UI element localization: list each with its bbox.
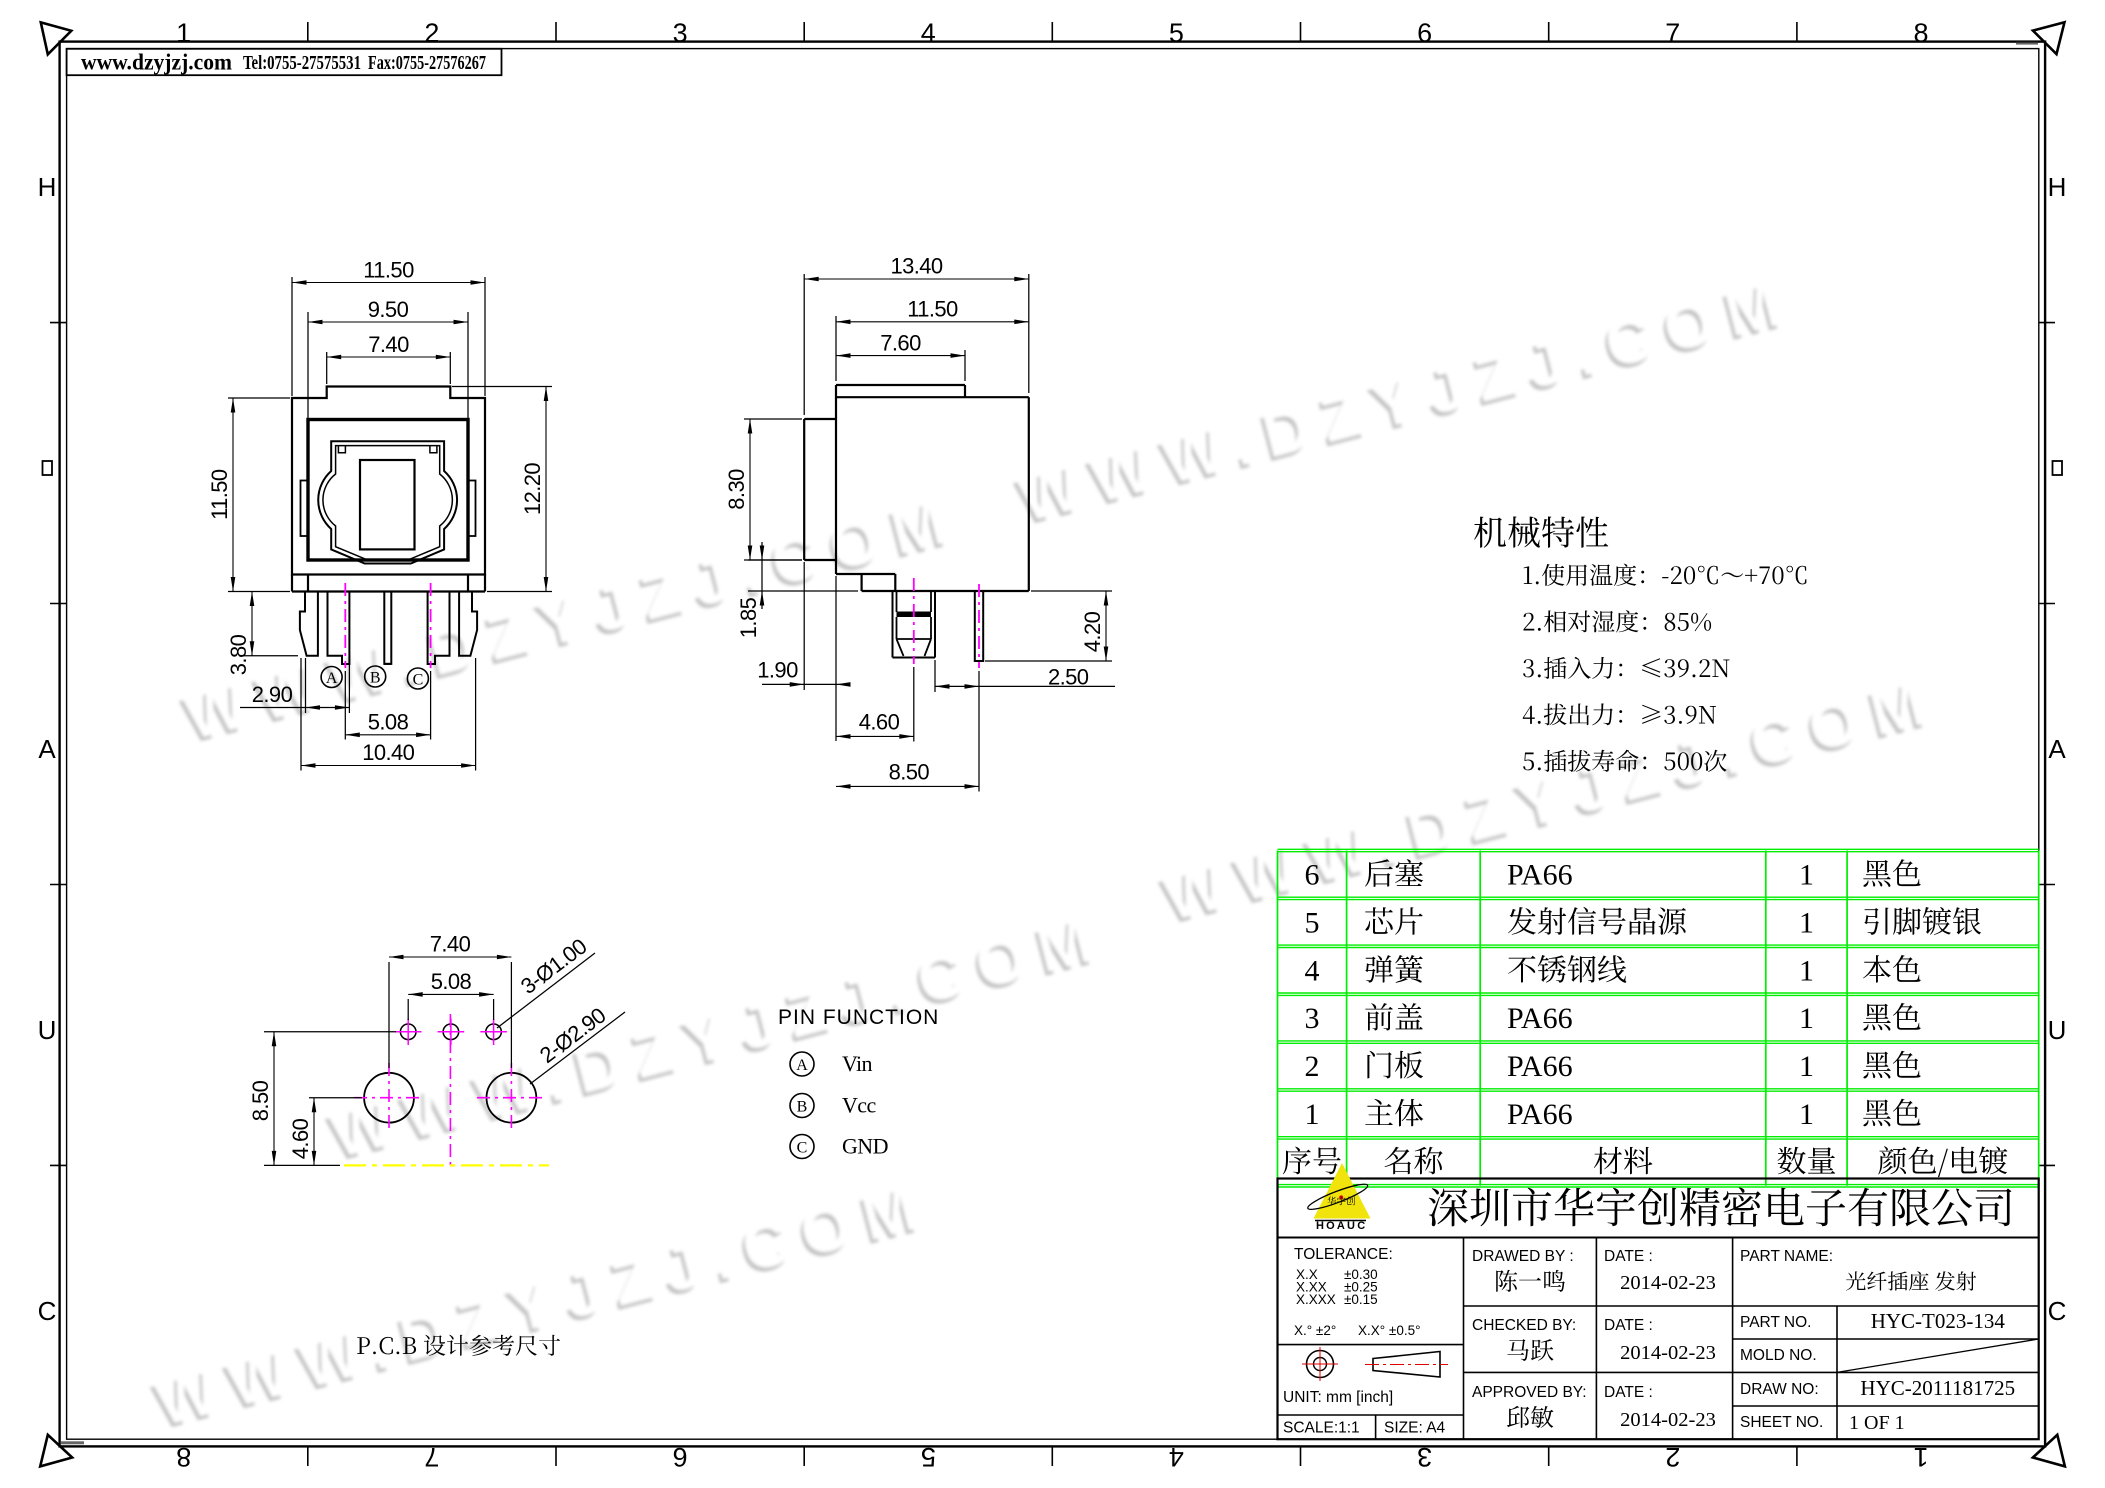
svg-text:HOAUC: HOAUC (1316, 1220, 1367, 1232)
svg-text:6: 6 (673, 1442, 688, 1472)
svg-text:www.dzyjzj.com: www.dzyjzj.com (81, 50, 232, 76)
svg-text:Vin: Vin (842, 1051, 872, 1076)
svg-text:1: 1 (1305, 1098, 1320, 1131)
svg-text:7.40: 7.40 (430, 932, 471, 957)
svg-text:3: 3 (1305, 1002, 1320, 1035)
svg-text:SCALE:1:1: SCALE:1:1 (1283, 1420, 1360, 1437)
svg-text:U: U (2048, 1015, 2067, 1045)
svg-text:A: A (2048, 734, 2066, 764)
svg-text:2014-02-23: 2014-02-23 (1620, 1342, 1716, 1364)
svg-text:1: 1 (1799, 906, 1814, 939)
svg-text:C: C (413, 672, 424, 689)
svg-text:3: 3 (1417, 1442, 1432, 1472)
svg-text:1.90: 1.90 (757, 658, 798, 683)
svg-text:Tel:0755-27575531: Tel:0755-27575531 (243, 53, 361, 74)
svg-text:1: 1 (1799, 1098, 1814, 1131)
svg-text:8: 8 (176, 1442, 191, 1472)
svg-text:5: 5 (1169, 18, 1184, 48)
svg-text:PART NO.: PART NO. (1740, 1314, 1812, 1331)
svg-text:X.XXX: X.XXX (1296, 1292, 1336, 1307)
svg-text:5: 5 (921, 1442, 936, 1472)
svg-text:TOLERANCE:: TOLERANCE: (1294, 1246, 1393, 1263)
svg-text:MOLD NO.: MOLD NO. (1740, 1347, 1817, 1364)
svg-text:B: B (370, 670, 381, 687)
svg-text:SHEET NO.: SHEET NO. (1740, 1414, 1823, 1431)
svg-text:2: 2 (424, 18, 439, 48)
svg-text:2: 2 (1305, 1050, 1320, 1083)
svg-text:A: A (326, 670, 338, 687)
svg-text:B: B (797, 1099, 808, 1116)
svg-text:PART NAME:: PART NAME: (1740, 1248, 1833, 1265)
svg-text:DATE :: DATE : (1604, 1248, 1653, 1265)
svg-text:2014-02-23: 2014-02-23 (1620, 1272, 1716, 1294)
svg-text:4: 4 (921, 18, 936, 48)
svg-text:C: C (2048, 1296, 2067, 1326)
svg-text:GND: GND (842, 1134, 888, 1159)
svg-text:UNIT: mm [inch]: UNIT: mm [inch] (1283, 1389, 1393, 1406)
svg-text:4: 4 (1305, 954, 1320, 987)
svg-text:PA66: PA66 (1507, 1002, 1573, 1035)
svg-text:8.50: 8.50 (248, 1080, 273, 1121)
svg-text:X.X° ±0.5°: X.X° ±0.5° (1358, 1323, 1420, 1338)
svg-text:3: 3 (673, 18, 688, 48)
svg-text:PA66: PA66 (1507, 1098, 1573, 1131)
svg-text:U: U (38, 1015, 57, 1045)
svg-text:2: 2 (1665, 1442, 1680, 1472)
svg-text:11.50: 11.50 (363, 258, 414, 283)
svg-text:1: 1 (1799, 954, 1814, 987)
svg-text:8.50: 8.50 (889, 759, 930, 784)
svg-text:H: H (2048, 172, 2067, 202)
svg-text:1: 1 (1799, 1002, 1814, 1035)
svg-text:X.° ±2°: X.° ±2° (1294, 1323, 1336, 1338)
svg-text:1: 1 (1799, 1050, 1814, 1083)
svg-text:7: 7 (424, 1442, 439, 1472)
svg-text:2014-02-23: 2014-02-23 (1620, 1409, 1716, 1431)
svg-text:11.50: 11.50 (207, 469, 232, 520)
svg-text:±0.15: ±0.15 (1344, 1292, 1378, 1307)
svg-text:H: H (38, 172, 57, 202)
svg-text:3.80: 3.80 (226, 634, 251, 675)
svg-text:CHECKED BY:: CHECKED BY: (1472, 1317, 1576, 1334)
svg-text:APPROVED BY:: APPROVED BY: (1472, 1384, 1587, 1401)
svg-text:PIN FUNCTION: PIN FUNCTION (778, 1006, 939, 1029)
svg-text:Vcc: Vcc (842, 1093, 876, 1118)
svg-text:1: 1 (176, 18, 191, 48)
svg-text:A: A (38, 734, 56, 764)
svg-text:HYC-2011181725: HYC-2011181725 (1860, 1376, 2015, 1400)
svg-text:7.40: 7.40 (368, 332, 409, 357)
svg-text:11.50: 11.50 (907, 296, 958, 321)
svg-text:Fax:0755-27576267: Fax:0755-27576267 (368, 53, 486, 74)
svg-text:12.20: 12.20 (520, 463, 545, 515)
svg-text:13.40: 13.40 (890, 254, 942, 279)
svg-text:2.90: 2.90 (252, 682, 293, 707)
svg-text:1: 1 (1913, 1442, 1928, 1472)
svg-text:5.08: 5.08 (431, 969, 472, 994)
svg-text:10.40: 10.40 (362, 740, 414, 765)
svg-text:DATE :: DATE : (1604, 1317, 1653, 1334)
svg-text:PA66: PA66 (1507, 1050, 1573, 1083)
svg-text:8: 8 (1913, 18, 1928, 48)
svg-text:SIZE: A4: SIZE: A4 (1384, 1420, 1446, 1437)
svg-text:C: C (797, 1140, 808, 1157)
svg-text:7.60: 7.60 (880, 330, 921, 355)
svg-text:A: A (796, 1057, 808, 1074)
svg-text:C: C (38, 1296, 57, 1326)
svg-text:7: 7 (1665, 18, 1680, 48)
svg-text:4.60: 4.60 (859, 709, 900, 734)
svg-text:2.50: 2.50 (1048, 664, 1089, 689)
svg-text:HYC-T023-134: HYC-T023-134 (1871, 1309, 2006, 1333)
svg-text:1: 1 (1799, 859, 1814, 892)
svg-text:6: 6 (1305, 859, 1320, 892)
svg-text:5.08: 5.08 (368, 709, 409, 734)
svg-text:9.50: 9.50 (368, 297, 409, 322)
svg-text:1.85: 1.85 (736, 597, 761, 638)
svg-text:PA66: PA66 (1507, 859, 1573, 892)
svg-text:DRAWED BY :: DRAWED BY : (1472, 1248, 1574, 1265)
svg-text:4: 4 (1169, 1442, 1184, 1472)
svg-text:DATE :: DATE : (1604, 1384, 1653, 1401)
svg-text:4.20: 4.20 (1080, 611, 1105, 652)
svg-text:5: 5 (1305, 906, 1320, 939)
svg-text:DRAW NO:: DRAW NO: (1740, 1381, 1819, 1398)
svg-text:4.60: 4.60 (288, 1118, 313, 1159)
svg-text:8.30: 8.30 (724, 469, 749, 510)
svg-text:1 OF 1: 1 OF 1 (1849, 1412, 1905, 1434)
svg-text:6: 6 (1417, 18, 1432, 48)
